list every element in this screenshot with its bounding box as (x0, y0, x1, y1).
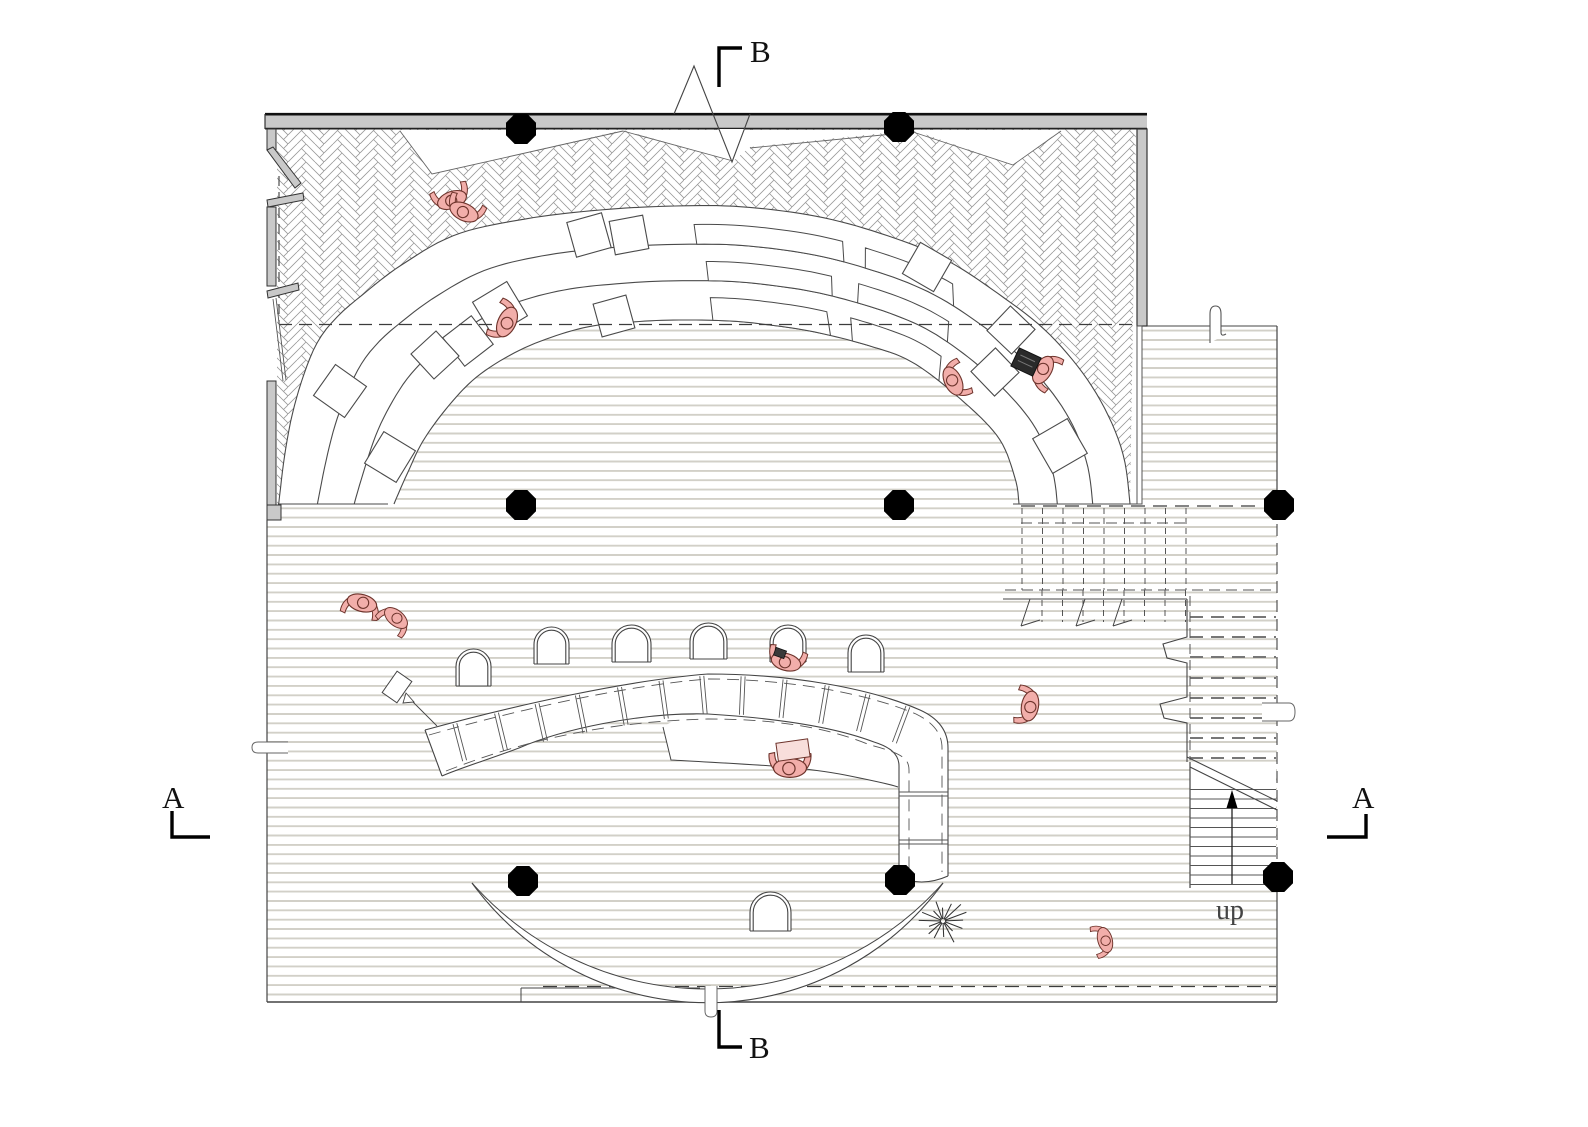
svg-text:B: B (749, 1030, 770, 1065)
svg-text:up: up (1216, 895, 1244, 926)
svg-text:A: A (1352, 780, 1375, 815)
svg-text:B: B (750, 34, 771, 69)
svg-text:A: A (162, 780, 185, 815)
